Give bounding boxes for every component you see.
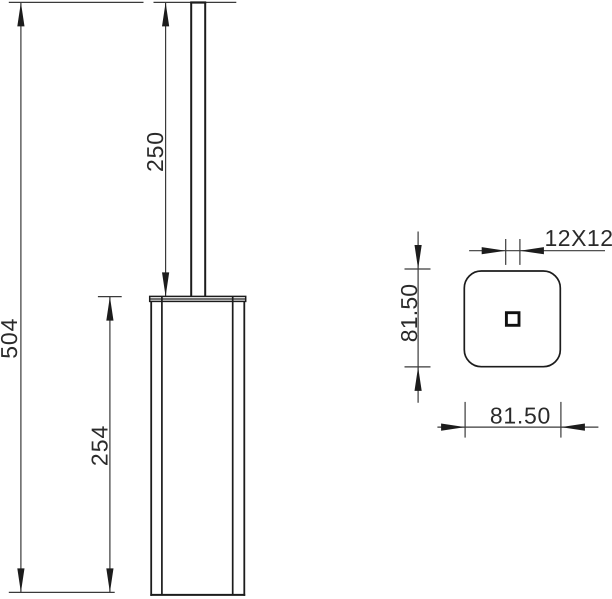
svg-text:254: 254 [87,425,113,466]
svg-text:81.50: 81.50 [396,284,422,342]
svg-text:504: 504 [0,318,22,358]
svg-text:12X12: 12X12 [545,225,612,251]
svg-text:81.50: 81.50 [490,402,551,428]
svg-text:250: 250 [142,132,168,172]
